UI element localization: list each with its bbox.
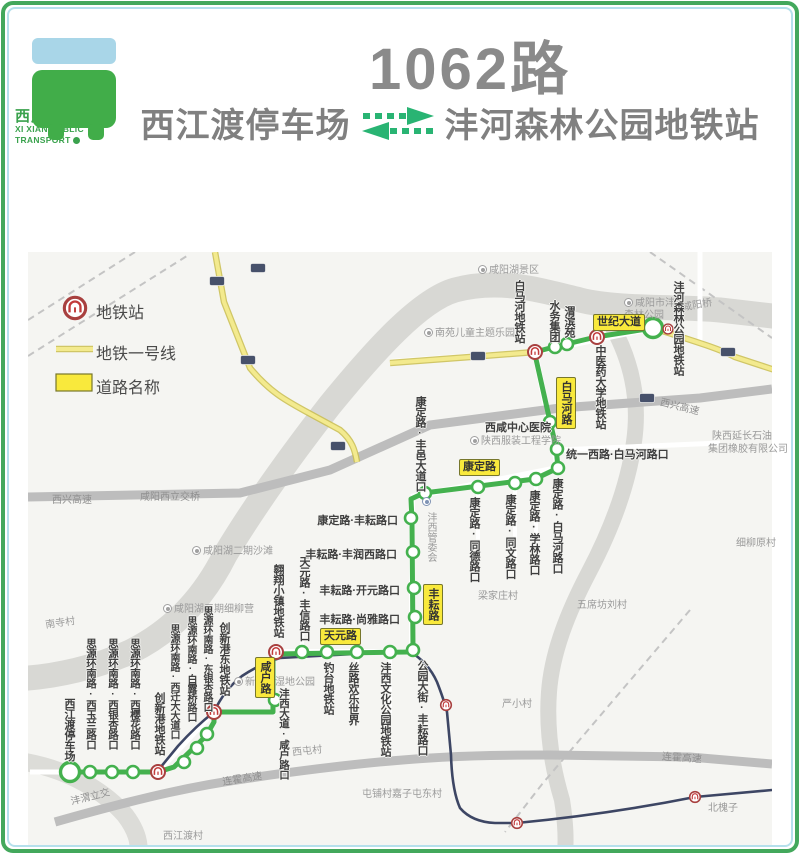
- station-label: 思源环南路·西银杏路口: [106, 638, 121, 750]
- map-pin-icon: [192, 546, 201, 555]
- place-label: 集团橡胶有限公司: [708, 440, 788, 455]
- place-label: 南苑儿童主题乐园: [424, 324, 515, 339]
- station-label: 水务集团: [546, 300, 562, 342]
- station-label: 公园大街·丰耘路口: [414, 660, 430, 756]
- place-label: 咸阳湖二期沙滩: [192, 542, 273, 557]
- station-label: 思源环南路·东银杏路口: [199, 606, 214, 712]
- map-pin-icon: [470, 436, 479, 445]
- station-label: 沣西大道·咸户路口: [277, 688, 292, 780]
- station-label: 丝路欢乐世界: [345, 662, 361, 725]
- map-pin-icon: [234, 677, 243, 686]
- station-label: 康定路·白马河路口: [549, 478, 565, 574]
- highway-label: 咸阳西立交桥: [140, 488, 200, 503]
- legend-road-name-label: 道路名称: [96, 374, 160, 398]
- station-label: 西咸中心医院: [485, 419, 551, 435]
- place-label: 屯铺村嘉子屯东村: [362, 785, 442, 800]
- station-label: 创新港东地铁站: [216, 622, 232, 696]
- highway-label: 连霍高速: [662, 748, 703, 766]
- map-pin-icon: [422, 497, 431, 506]
- place-label: 五席坊刘村: [577, 596, 627, 611]
- station-label: 沣西文化公园地铁站: [377, 662, 393, 757]
- place-label: 北槐子: [708, 799, 738, 814]
- station-label: 翱翔小镇地铁站: [270, 564, 286, 638]
- station-label: 丰耘路·尚雅路口: [310, 611, 400, 627]
- station-label: 康定路·丰邑大道口: [412, 396, 428, 492]
- station-label: 渭滨苑: [561, 306, 577, 338]
- station-label: 思源环南路·西迁大大道口: [166, 624, 181, 739]
- highway-label: 西兴高速: [52, 491, 92, 506]
- brand-bus-logo: [0, 0, 150, 150]
- station-label: 思源环南路·西樱花路口: [128, 638, 143, 750]
- road-badge-tianyuan-road: 天元路: [320, 628, 361, 645]
- map-pin-icon: [624, 298, 633, 307]
- place-label: 细柳原村: [736, 534, 776, 549]
- station-label: 思源环南路·白露桥路口: [183, 616, 198, 722]
- station-label: 丰耘路·丰润西路口: [297, 546, 397, 562]
- road-badge-shiji-avenue: 世纪大道: [593, 314, 645, 331]
- road-badge-kangding-road: 康定路: [459, 459, 500, 476]
- legend-metro-station-label: 地铁站: [96, 299, 144, 323]
- terminal-xijiangdu-dot: [61, 763, 80, 782]
- legend-metro-line-label: 地铁一号线: [96, 340, 176, 364]
- bus-route-poster: 西咸公交 XI XIAN PUBLIC TRANSPORT 1062路 西江渡停…: [0, 0, 800, 854]
- station-label: 中医药大学地铁站: [592, 345, 608, 429]
- station-label: 思源环南路·西玉兰路口: [84, 638, 99, 750]
- station-label: 康定路·同文路口: [502, 494, 518, 579]
- road-badge-baimahe-road: 白马河路: [556, 377, 576, 429]
- station-label: 沣河森林公园地铁站: [670, 281, 686, 376]
- station-label: 白马河地铁站: [511, 280, 527, 343]
- station-label: 康定路·学林路口: [526, 490, 542, 575]
- map-pin-icon: [424, 328, 433, 337]
- station-label: 西江渡停车场: [61, 698, 77, 761]
- place-label: 沣西管委会: [423, 512, 438, 562]
- station-label: 康定路·同德路口: [466, 497, 482, 582]
- station-label: 统一西路·白马河路口: [566, 446, 669, 462]
- station-label: 天元路·丰信路口: [296, 556, 312, 641]
- place-label: 西江渡村: [163, 827, 203, 842]
- map-pin-icon: [478, 265, 487, 274]
- place-label: [422, 497, 433, 508]
- station-label: 创新港地铁站: [151, 692, 167, 755]
- station-label: 钓台地铁站: [320, 662, 336, 715]
- place-label: 梁家庄村: [478, 587, 518, 602]
- place-label: 咸阳湖景区: [478, 261, 539, 276]
- station-label: 康定路·丰耘路口: [308, 512, 398, 528]
- road-badge-fengyun-road: 丰耘路: [423, 584, 443, 625]
- station-label: 丰耘路·开元路口: [310, 582, 400, 598]
- map-pin-icon: [163, 604, 172, 613]
- road-badge-xianhu-road: 咸户路: [255, 657, 275, 698]
- legend-metro-station-icon: [64, 297, 85, 318]
- place-label: 西屯村: [291, 740, 322, 758]
- place-label: 严小村: [502, 695, 532, 710]
